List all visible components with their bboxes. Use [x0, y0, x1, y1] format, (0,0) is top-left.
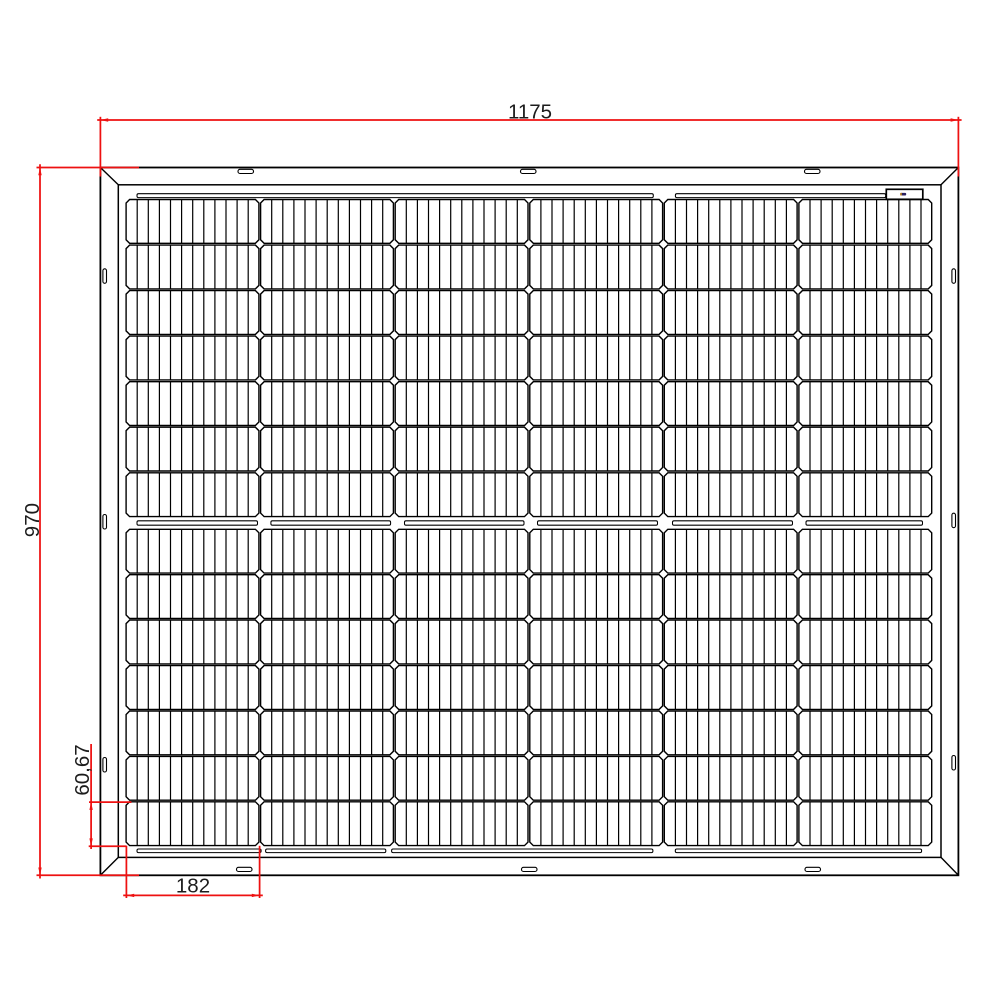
svg-text:60,67: 60,67: [71, 744, 94, 795]
svg-text:970: 970: [21, 503, 44, 537]
svg-text:1175: 1175: [508, 101, 552, 124]
svg-text:182: 182: [176, 875, 210, 898]
